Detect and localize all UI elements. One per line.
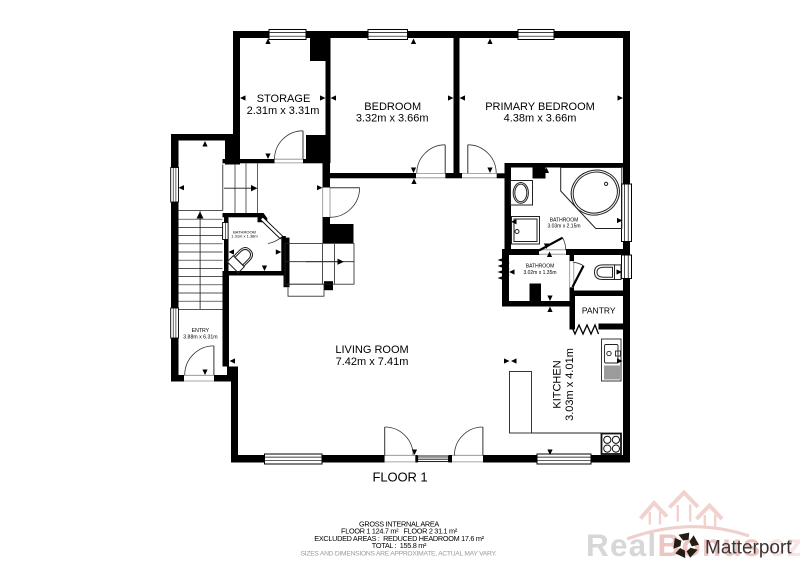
svg-text:PRIMARY BEDROOM: PRIMARY BEDROOM (485, 101, 595, 113)
svg-text:SIZES AND DIMENSIONS ARE APPRO: SIZES AND DIMENSIONS ARE APPROXIMATE, AC… (301, 551, 497, 558)
svg-text:PANTRY: PANTRY (582, 305, 616, 315)
svg-text:3.03m x 4.01m: 3.03m x 4.01m (564, 348, 576, 421)
svg-text:1.31m x 1.38m: 1.31m x 1.38m (231, 234, 258, 239)
svg-text:ENTRY: ENTRY (192, 328, 210, 334)
svg-text:7.42m x 7.41m: 7.42m x 7.41m (336, 356, 409, 368)
svg-text:3.88m x 6.31m: 3.88m x 6.31m (183, 334, 217, 340)
svg-text:®: ® (788, 540, 793, 547)
svg-text:BEDROOM: BEDROOM (364, 101, 421, 113)
svg-text:FLOOR 1: FLOOR 1 (373, 469, 428, 484)
svg-text:2.31m x 3.31m: 2.31m x 3.31m (247, 105, 320, 117)
svg-text:STORAGE: STORAGE (257, 93, 311, 105)
svg-text:3.02m x 1.35m: 3.02m x 1.35m (523, 270, 556, 276)
svg-text:Matterport: Matterport (705, 538, 792, 559)
svg-text:TOTAL : 155.8 m²: TOTAL : 155.8 m² (372, 541, 427, 550)
svg-text:3.32m x 3.66m: 3.32m x 3.66m (356, 113, 429, 125)
svg-text:KITCHEN: KITCHEN (552, 360, 564, 408)
svg-text:4.38m x 3.66m: 4.38m x 3.66m (504, 113, 577, 125)
svg-text:3.03m x 2.15m: 3.03m x 2.15m (547, 224, 580, 230)
svg-text:BATHROOM: BATHROOM (526, 264, 555, 270)
svg-text:LIVING ROOM: LIVING ROOM (335, 344, 408, 356)
